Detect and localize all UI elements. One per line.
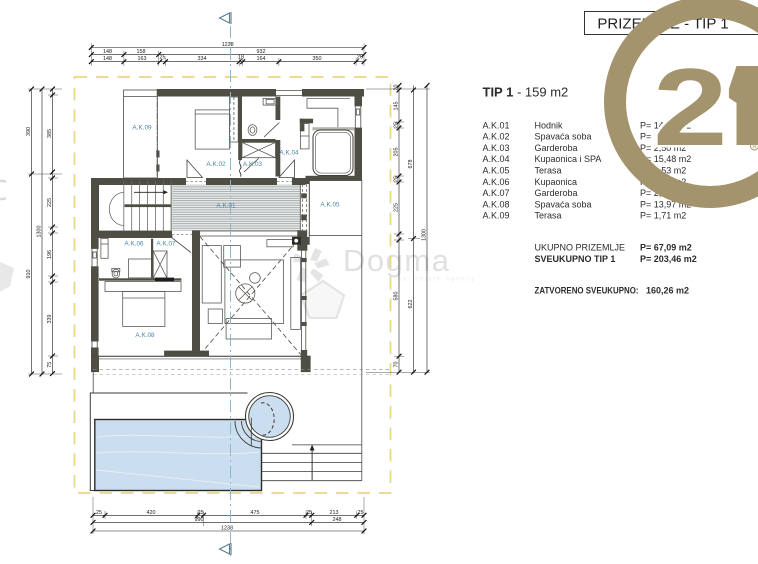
svg-text:145: 145	[394, 102, 400, 111]
svg-text:248: 248	[333, 517, 342, 523]
svg-text:A.K.05: A.K.05	[483, 166, 510, 176]
svg-text:A.K.07: A.K.07	[156, 241, 176, 248]
svg-text:A.K.03: A.K.03	[243, 161, 263, 168]
svg-text:158: 158	[137, 49, 146, 55]
svg-text:70: 70	[394, 362, 400, 368]
svg-text:Hodnik: Hodnik	[535, 120, 564, 130]
svg-text:TIP 1 - 159 m2: TIP 1 - 159 m2	[483, 84, 569, 99]
svg-text:A.K.03: A.K.03	[483, 143, 510, 153]
svg-text:A.K.05: A.K.05	[320, 202, 340, 209]
svg-text:R: R	[752, 144, 757, 150]
svg-text:Garderoba: Garderoba	[535, 143, 578, 153]
svg-text:A.K.08: A.K.08	[483, 199, 510, 209]
svg-text:475: 475	[251, 510, 260, 516]
svg-text:213: 213	[330, 510, 339, 516]
svg-text:18: 18	[238, 55, 244, 61]
svg-text:Garderoba: Garderoba	[535, 188, 578, 198]
svg-text:1238: 1238	[221, 526, 233, 532]
svg-text:225: 225	[47, 198, 53, 207]
svg-text:25: 25	[394, 122, 400, 128]
svg-text:25: 25	[96, 510, 102, 516]
svg-text:P= 67,09 m2: P= 67,09 m2	[640, 243, 692, 253]
svg-text:622: 622	[408, 300, 414, 309]
svg-text:A.K.02: A.K.02	[483, 132, 510, 142]
svg-text:990: 990	[195, 517, 204, 523]
svg-text:148: 148	[103, 49, 112, 55]
svg-text:196: 196	[47, 250, 53, 259]
svg-text:25: 25	[198, 510, 204, 516]
svg-text:1300: 1300	[37, 226, 43, 238]
svg-text:163: 163	[138, 56, 147, 62]
svg-text:26: 26	[357, 55, 363, 61]
svg-text:real estate agency: real estate agency	[394, 276, 476, 283]
svg-text:A.K.08: A.K.08	[135, 332, 155, 339]
svg-text:P= 1,71 m2: P= 1,71 m2	[640, 211, 686, 221]
svg-text:25: 25	[358, 510, 364, 516]
svg-text:Spavaća soba: Spavaća soba	[535, 132, 592, 142]
svg-text:1238: 1238	[222, 42, 234, 48]
svg-text:164: 164	[257, 56, 266, 62]
svg-text:Spavaća soba: Spavaća soba	[535, 199, 592, 209]
svg-text:A.K.01: A.K.01	[483, 120, 510, 130]
svg-text:1300: 1300	[422, 229, 428, 241]
svg-text:A.K.02: A.K.02	[206, 161, 226, 168]
svg-text:A.K.09: A.K.09	[132, 125, 152, 132]
svg-text:390: 390	[26, 127, 32, 136]
svg-text:A.K.01: A.K.01	[216, 203, 236, 210]
svg-text:P= 203,46 m2: P= 203,46 m2	[640, 254, 697, 264]
svg-text:205: 205	[394, 148, 400, 157]
svg-text:A.K.09: A.K.09	[483, 211, 510, 221]
svg-text:932: 932	[257, 49, 266, 55]
svg-text:A.K.04: A.K.04	[279, 150, 299, 157]
svg-text:148: 148	[103, 56, 112, 62]
svg-text:UKUPNO PRIZEMLJE: UKUPNO PRIZEMLJE	[535, 243, 626, 253]
svg-text:Dogma: Dogma	[343, 243, 450, 278]
svg-text:75: 75	[47, 362, 53, 368]
svg-text:910: 910	[26, 270, 32, 279]
svg-text:Terasa: Terasa	[535, 166, 562, 176]
svg-text:25: 25	[306, 510, 312, 516]
svg-text:350: 350	[313, 56, 322, 62]
svg-text:Kupaonica: Kupaonica	[535, 177, 578, 187]
svg-text:2: 2	[653, 45, 728, 168]
svg-text:25: 25	[160, 55, 166, 61]
svg-text:Terasa: Terasa	[535, 211, 562, 221]
svg-text:678: 678	[408, 160, 414, 169]
svg-text:A.K.04: A.K.04	[483, 154, 510, 164]
svg-text:225: 225	[394, 203, 400, 212]
svg-text:580: 580	[394, 292, 400, 301]
svg-text:Kupaonica i SPA: Kupaonica i SPA	[535, 154, 602, 164]
svg-text:A.K.06: A.K.06	[124, 241, 144, 248]
svg-text:SVEUKUPNO TIP 1: SVEUKUPNO TIP 1	[535, 254, 616, 264]
svg-text:20: 20	[394, 85, 400, 91]
svg-text:385: 385	[47, 129, 53, 138]
svg-text:334: 334	[198, 56, 207, 62]
svg-text:A.K.07: A.K.07	[483, 188, 510, 198]
svg-text:339: 339	[47, 315, 53, 324]
svg-text:A.K.06: A.K.06	[483, 177, 510, 187]
svg-text:160,26 m2: 160,26 m2	[646, 286, 689, 296]
svg-text:25: 25	[394, 176, 400, 182]
svg-text:420: 420	[147, 510, 156, 516]
svg-text:ZATVORENO SVEUKUPNO:: ZATVORENO SVEUKUPNO:	[535, 286, 639, 296]
